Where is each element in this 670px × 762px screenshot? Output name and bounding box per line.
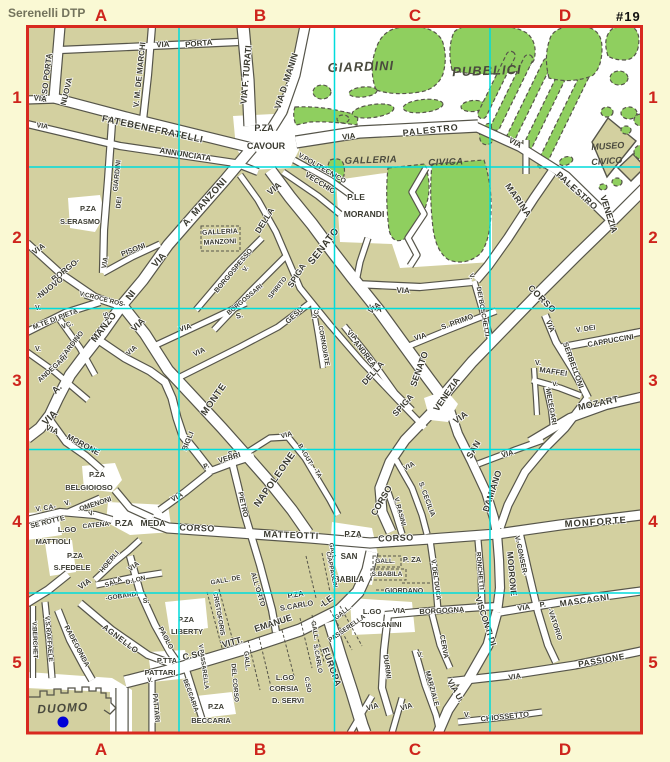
svg-text:V.: V.: [552, 381, 558, 388]
svg-text:5: 5: [12, 653, 21, 672]
svg-text:CAVOUR: CAVOUR: [247, 141, 286, 151]
svg-text:MATTEOTTI: MATTEOTTI: [263, 529, 319, 541]
svg-text:MEDA: MEDA: [140, 518, 165, 528]
svg-text:4: 4: [12, 512, 22, 531]
svg-text:CORSO: CORSO: [378, 532, 414, 543]
svg-text:A: A: [95, 6, 107, 25]
svg-text:BABILA: BABILA: [334, 575, 364, 584]
svg-text:VIA: VIA: [508, 671, 522, 682]
svg-text:LIBERTY: LIBERTY: [171, 627, 203, 636]
svg-text:GIARDINI: GIARDINI: [327, 58, 394, 75]
svg-text:3: 3: [648, 371, 657, 390]
svg-text:VIA: VIA: [517, 602, 531, 613]
svg-text:GALL.: GALL.: [375, 558, 395, 565]
svg-text:PUBBLICI: PUBBLICI: [452, 62, 522, 79]
svg-text:MATTIOLI: MATTIOLI: [36, 537, 71, 546]
svg-text:1: 1: [12, 88, 21, 107]
svg-text:CORSIA: CORSIA: [269, 684, 299, 693]
svg-text:V.: V.: [417, 652, 423, 659]
svg-text:L.GO: L.GO: [276, 673, 294, 682]
svg-text:CORSO: CORSO: [179, 522, 215, 533]
svg-text:S.ERASMO: S.ERASMO: [60, 217, 100, 226]
svg-text:P.TTA: P.TTA: [157, 656, 178, 665]
svg-text:VIA: VIA: [396, 286, 410, 295]
svg-text:GALLERIA: GALLERIA: [344, 154, 397, 167]
svg-text:P.ZA: P.ZA: [344, 530, 361, 539]
svg-text:BELGIOIOSO: BELGIOIOSO: [65, 483, 113, 492]
svg-text:S.: S.: [143, 598, 150, 605]
svg-text:B: B: [254, 6, 266, 25]
svg-text:3: 3: [12, 371, 21, 390]
svg-text:C: C: [409, 740, 421, 759]
svg-text:Serenelli DTP: Serenelli DTP: [8, 6, 85, 20]
svg-text:P.ZA: P.ZA: [89, 470, 106, 479]
svg-text:B: B: [254, 740, 266, 759]
svg-text:4: 4: [648, 512, 658, 531]
svg-text:V.: V.: [464, 712, 470, 719]
svg-text:P.ZA: P.ZA: [208, 702, 225, 711]
svg-text:S.FEDELE: S.FEDELE: [54, 563, 91, 572]
svg-text:P.ZA: P.ZA: [254, 123, 274, 133]
svg-text:C: C: [409, 6, 421, 25]
svg-text:1: 1: [648, 88, 657, 107]
svg-text:PATTARI: PATTARI: [145, 668, 176, 677]
svg-text:2: 2: [648, 228, 657, 247]
svg-text:VIA: VIA: [393, 606, 406, 615]
svg-text:V.: V.: [35, 346, 41, 353]
svg-text:D: D: [559, 740, 571, 759]
svg-text:SAN: SAN: [341, 552, 358, 561]
svg-text:P.ZA: P.ZA: [67, 551, 84, 560]
svg-text:L.GO: L.GO: [363, 607, 381, 616]
svg-text:P.ZA: P.ZA: [178, 615, 195, 624]
svg-text:DUOMO: DUOMO: [37, 700, 89, 717]
svg-text:VIA: VIA: [33, 93, 47, 103]
svg-text:D: D: [559, 6, 571, 25]
svg-text:P.ZA: P.ZA: [80, 204, 97, 213]
svg-text:BECCARIA: BECCARIA: [191, 716, 231, 725]
svg-text:GIORDANO: GIORDANO: [385, 588, 424, 595]
svg-text:P. ZA: P. ZA: [403, 555, 422, 564]
svg-text:V.: V.: [147, 677, 153, 684]
svg-text:#19: #19: [616, 9, 641, 24]
svg-text:TOSCANINI: TOSCANINI: [360, 620, 401, 629]
svg-text:5: 5: [648, 653, 657, 672]
svg-text:P.LE: P.LE: [347, 192, 365, 202]
svg-text:S.BABILA: S.BABILA: [372, 571, 403, 578]
svg-text:2: 2: [12, 228, 21, 247]
svg-text:MORANDI: MORANDI: [344, 209, 385, 219]
svg-text:V.BERCHET: V.BERCHET: [30, 621, 38, 658]
svg-text:VIA: VIA: [156, 40, 170, 50]
svg-text:L.GO: L.GO: [58, 525, 76, 534]
svg-text:D. SERVI: D. SERVI: [272, 696, 304, 705]
svg-text:P.ZA: P.ZA: [115, 518, 133, 528]
svg-text:VIA: VIA: [342, 131, 356, 141]
svg-text:P.: P.: [539, 600, 546, 610]
svg-text:A: A: [95, 740, 107, 759]
